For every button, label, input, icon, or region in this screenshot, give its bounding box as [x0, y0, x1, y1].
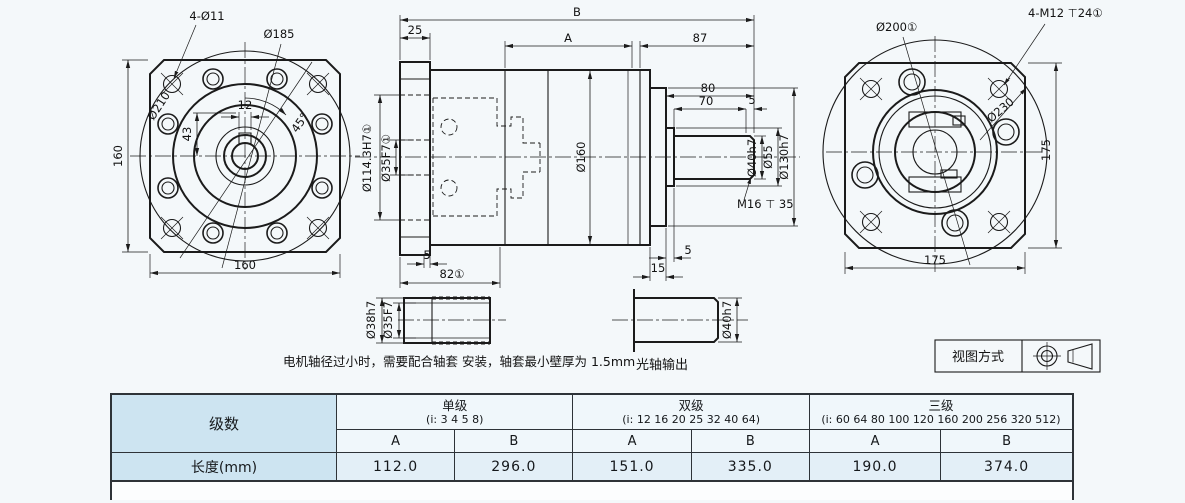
dim-rear-tapped-holes: 4-M12 ⊤24① [1028, 6, 1103, 20]
stage-ratios: (i: 3 4 5 8) [337, 413, 572, 429]
col-b-header: B [691, 430, 809, 453]
stage-name: 单级 [337, 395, 572, 413]
dim-front-corner-holes: 4-Ø11 [189, 9, 224, 23]
length-value: 335.0 [691, 453, 809, 482]
dim-front-width: 160 [234, 258, 256, 272]
dim-spigot-dia: Ø130h7 [777, 134, 791, 180]
dim-overall-length: B [573, 5, 581, 19]
dim-flange-lip: 5 [423, 248, 430, 262]
stage-group-double: 双级 (i: 12 16 20 25 32 40 64) [573, 394, 809, 430]
dim-body-length: A [564, 31, 572, 45]
dim-sleeve-outer: Ø38h7 [364, 301, 378, 339]
front-view: 4-Ø11 Ø185 Ø210 12 43 45° 160 160 [111, 9, 360, 278]
dim-rear-width: 175 [924, 253, 946, 267]
col-a-header: A [809, 430, 940, 453]
stage-name: 三级 [810, 395, 1072, 413]
spec-table-region: 级数 单级 (i: 3 4 5 8) 双级 (i: 12 16 20 25 32… [110, 393, 1074, 500]
dim-front-keyway-depth: 43 [180, 127, 194, 142]
projection-cone-icon [1068, 344, 1092, 369]
projection-circle-icon [1033, 342, 1061, 370]
col-a-header: A [336, 430, 454, 453]
dim-shaft-tip: 5 [748, 93, 755, 107]
projection-title: 视图方式 [952, 349, 1004, 365]
dim-sleeve-inner: Ø35F7 [381, 301, 395, 339]
dim-rear-step: 15 [651, 261, 666, 275]
stage-header-cell: 级数 [111, 394, 336, 453]
length-row-label: 长度(mm) [111, 453, 336, 482]
dim-front-bolt-circle: Ø185 [263, 27, 294, 41]
sleeve-detail: Ø38h7 Ø35F7 [364, 298, 506, 343]
dim-shaft-dia: Ø40h7 [745, 139, 759, 177]
stage-ratios: (i: 60 64 80 100 120 160 200 256 320 512… [810, 413, 1072, 429]
dim-rear-pilot: Ø200① [876, 20, 917, 34]
dim-front-keyway-width: 12 [238, 98, 253, 112]
dim-pilot-dia: Ø114.3H7① [360, 124, 374, 192]
dim-rear-length: 87 [693, 31, 708, 45]
length-value: 374.0 [941, 453, 1073, 482]
rear-view: Ø200① 4-M12 ⊤24① Ø230 175 175 [823, 6, 1103, 274]
dim-front-height: 160 [111, 145, 125, 167]
col-a-header: A [573, 430, 691, 453]
gearbox-body [430, 70, 650, 245]
dim-bore-dia: Ø35F7① [379, 134, 393, 182]
dim-plain-shaft-dia: Ø40h7 [720, 301, 734, 339]
dim-flange-depth: 82① [440, 267, 465, 281]
col-b-header: B [455, 430, 573, 453]
stage-group-triple: 三级 (i: 60 64 80 100 120 160 200 256 320 … [809, 394, 1073, 430]
dim-body-dia: Ø160 [574, 141, 588, 172]
dim-front-angle: 45° [288, 110, 311, 135]
next-row-partial [110, 482, 1074, 500]
dim-flange-length: 25 [408, 23, 423, 37]
dim-shaft-total: 80 [701, 81, 716, 95]
dim-rear-height: 175 [1039, 139, 1053, 161]
hidden-clamp-detail [400, 95, 540, 220]
technical-drawing: 4-Ø11 Ø185 Ø210 12 43 45° 160 160 [0, 0, 1185, 390]
col-b-header: B [941, 430, 1073, 453]
stage-group-single: 单级 (i: 3 4 5 8) [336, 394, 572, 430]
dim-collar-dia: Ø55 [761, 145, 775, 169]
length-value: 190.0 [809, 453, 940, 482]
sleeve-body [404, 298, 490, 343]
input-flange [400, 62, 430, 255]
dim-spigot-gap: 5 [684, 243, 691, 257]
spec-table: 级数 单级 (i: 3 4 5 8) 双级 (i: 12 16 20 25 32… [110, 393, 1074, 482]
output-shaft [674, 136, 754, 179]
projection-box: 视图方式 [935, 340, 1100, 372]
stage-ratios: (i: 12 16 20 25 32 40 64) [573, 413, 808, 429]
length-value: 151.0 [573, 453, 691, 482]
section-view: B 25 A 87 80 70 5 5 82① 15 5 Ø160 Ø114.3… [355, 5, 800, 288]
length-value: 296.0 [455, 453, 573, 482]
length-value: 112.0 [336, 453, 454, 482]
plain-shaft-caption: 光轴输出 [636, 357, 688, 373]
sleeve-note: 电机轴径过小时，需要配合轴套 安装，轴套最小壁厚为 1.5mm [283, 354, 635, 369]
stage-name: 双级 [573, 395, 808, 413]
dim-tap-spec: M16 ⊤ 35 [737, 197, 794, 211]
dim-shaft-length: 70 [699, 94, 714, 108]
